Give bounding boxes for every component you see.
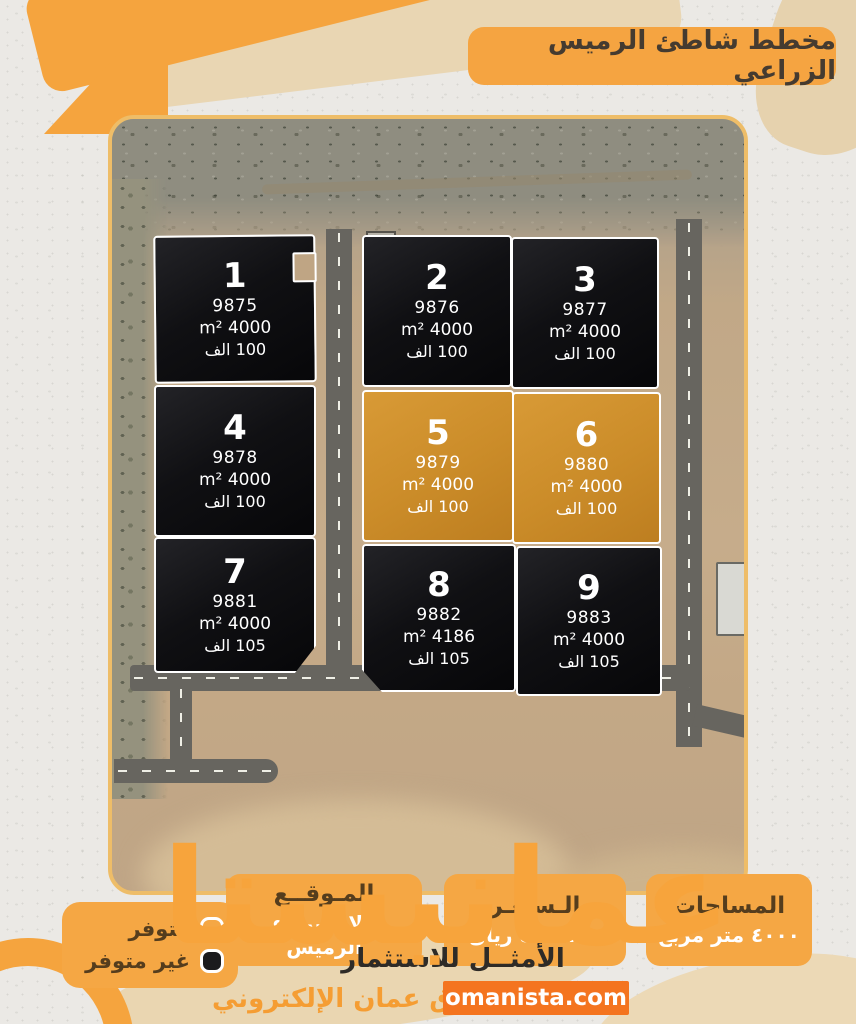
plot-card-7: 7 9881 4000 m² 105 الف — [154, 537, 316, 673]
plot-parcel: 9876 — [414, 298, 459, 318]
plot-parcel: 9879 — [415, 453, 460, 473]
road-horizontal-lower — [114, 759, 278, 783]
plot-price: 100 الف — [556, 499, 618, 518]
plot-card-6: 6 9880 4000 m² 100 الف — [512, 392, 661, 544]
plot-parcel: 9877 — [562, 300, 607, 320]
plot-card-4: 4 9878 4000 m² 100 الف — [154, 385, 316, 537]
plot-price: 105 الف — [408, 649, 470, 668]
page-title: مخطط شاطئ الرميس الزراعي — [468, 26, 836, 86]
plot-area: 4000 m² — [549, 322, 621, 342]
plot-parcel: 9882 — [416, 605, 461, 625]
poster: 1 9875 4000 m² 100 الف 2 9876 4000 m² 10… — [0, 0, 856, 1024]
plot-parcel: 9883 — [566, 608, 611, 628]
plot-card-3: 3 9877 4000 m² 100 الف — [511, 237, 659, 389]
plot-number: 9 — [577, 571, 601, 607]
plot-parcel: 9878 — [212, 448, 257, 468]
road-vertical-left — [326, 229, 352, 684]
plot-number: 4 — [223, 411, 247, 447]
plot-area: 4000 m² — [402, 475, 474, 495]
plot-card-2: 2 9876 4000 m² 100 الف — [362, 235, 512, 387]
plot-number: 7 — [223, 555, 247, 591]
plot-parcel: 9875 — [212, 296, 257, 316]
satellite-map: 1 9875 4000 m² 100 الف 2 9876 4000 m² 10… — [108, 115, 748, 895]
plot-price: 105 الف — [204, 636, 266, 655]
plot-area: 4000 m² — [550, 477, 622, 497]
plot-price: 100 الف — [407, 497, 469, 516]
website-badge[interactable]: omanista.com — [443, 981, 629, 1015]
plot-parcel: 9880 — [564, 455, 609, 475]
plot-number: 2 — [425, 261, 449, 297]
plot-number: 8 — [427, 568, 451, 604]
plot-area: 4000 m² — [401, 320, 473, 340]
plot-price: 100 الف — [204, 492, 266, 511]
plot-area: 4186 m² — [403, 627, 475, 647]
plot-card-1: 1 9875 4000 m² 100 الف — [153, 234, 317, 384]
plot-card-5: 5 9879 4000 m² 100 الف — [362, 390, 514, 542]
plot-parcel: 9881 — [212, 592, 257, 612]
plot-area: 4000 m² — [199, 318, 271, 339]
plot-price: 100 الف — [205, 340, 267, 360]
plot-price: 105 الف — [558, 652, 620, 671]
plot-number: 1 — [223, 259, 247, 295]
plot-price: 100 الف — [554, 344, 616, 363]
plot-price: 100 الف — [406, 342, 468, 361]
plot-notch — [292, 252, 316, 282]
plot-card-9: 9 9883 4000 m² 105 الف — [516, 546, 662, 696]
plot-number: 5 — [426, 416, 450, 452]
plot-number: 6 — [575, 418, 599, 454]
watermark-brand: عمانيستا — [162, 832, 731, 964]
plot-number: 3 — [573, 263, 597, 299]
plot-area: 4000 m² — [553, 630, 625, 650]
plot-area: 4000 m² — [199, 470, 271, 490]
building — [716, 562, 748, 636]
title-banner: مخطط شاطئ الرميس الزراعي — [468, 27, 836, 85]
plot-card-8: 8 9882 4186 m² 105 الف — [362, 544, 516, 692]
road-connector — [170, 685, 192, 763]
plot-area: 4000 m² — [199, 614, 271, 634]
